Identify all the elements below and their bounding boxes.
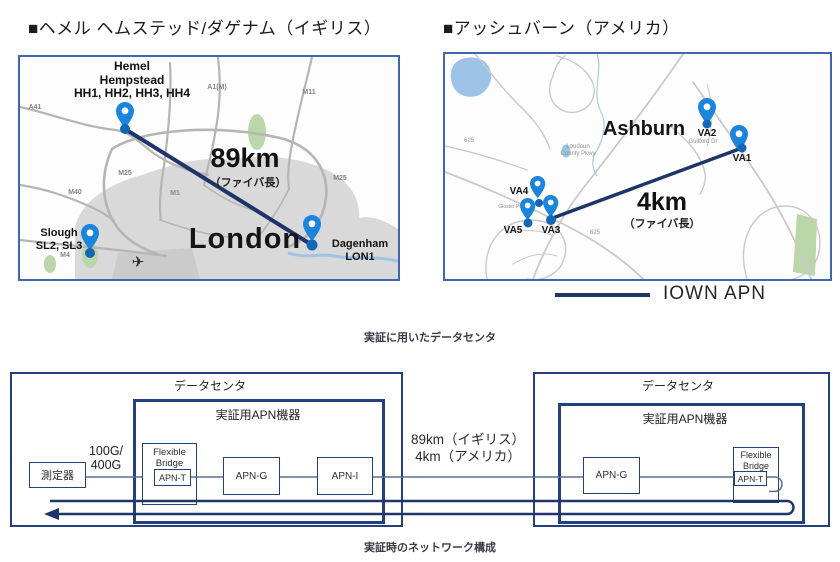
network-caption: 実証時のネットワーク構成 [280,539,580,555]
road-label-m40: M40 [62,189,88,196]
road-label-m25: M25 [112,170,138,177]
left-apn-equipment-label: 実証用APN機器 [183,406,333,423]
apn-i-box: APN-I [317,457,373,495]
right-datacenter-label: データセンタ [608,377,748,394]
iown-apn-legend-label: IOWN APN [663,283,766,305]
us-map: Ashburn VA2 VA1 VA4 VA5 VA3 4km （ファイバ長） … [443,52,832,281]
road-label-625: 625 [585,230,605,237]
left-apn-t-box: APN-T [154,469,191,486]
road-label-625: 625 [459,138,479,145]
left-datacenter-label: データセンタ [140,377,280,394]
lake-area [451,57,492,96]
va3-dot [546,215,556,225]
maps-caption: 実証に用いたデータセンタ [280,329,580,345]
road-label-m1: M1 [162,190,188,197]
road-label-a1m: A1(M) [202,84,232,91]
rate-label: 100G/ 400G [80,444,132,472]
uk-section-title: ■ヘメル ヘムステッド/ダゲナム（イギリス） [28,14,381,39]
fiber-distance-label: 89km（イギリス） 4km（アメリカ） [398,432,538,465]
uk-map: Hemel Hempstead HH1, HH2, HH3, HH4 89km … [18,55,400,281]
road-label-a41: A41 [22,104,48,111]
us-map-canvas [445,54,830,279]
va5-label: VA5 [499,225,527,236]
uk-fiber-note: （ファイバ長） [188,174,308,190]
right-apn-g-box: APN-G [583,457,640,494]
airport-plane-icon: ✈ [126,253,150,271]
va4-label: VA4 [505,186,533,197]
slough-site-label: Slough SL2, SL3 [24,227,94,253]
va2-label: VA2 [692,128,722,139]
va3-label: VA3 [537,225,565,236]
right-flexible-bridge-label: Flexible Bridge [734,448,778,471]
hemel-site-label: Hemel Hempstead HH1, HH2, HH3, HH4 [57,60,207,101]
road-label-m11: M11 [296,89,322,96]
dagenham-site-label: Dagenham LON1 [320,238,400,264]
iown-apn-legend-line [555,293,650,297]
us-section-title: ■アッシュバーン（アメリカ） [443,14,680,39]
figure-root: ■ヘメル ヘムステッド/ダゲナム（イギリス） ■アッシュバーン（アメリカ） [0,0,840,562]
road-label-m25: M25 [327,175,353,182]
us-distance-label: 4km [622,188,702,217]
road-label-m4: M4 [52,252,78,259]
road-label-guilford: Guilford Dr [688,139,718,146]
right-apn-t-box: APN-T [734,471,767,486]
va1-dot [738,144,747,153]
right-apn-equipment-label: 実証用APN機器 [610,410,760,427]
va4-dot [535,199,543,207]
road-label-loudoun: Loudoun County Pkwy [560,144,596,158]
left-flexible-bridge-label: Flexible Bridge [143,444,196,469]
us-fiber-note: （ファイバ長） [612,215,712,231]
left-apn-g-box: APN-G [223,457,280,495]
hemel-dot [120,124,130,134]
va1-label: VA1 [727,153,757,164]
measurement-device-box: 測定器 [29,462,86,488]
us-roads [445,54,820,279]
london-label: London [170,223,320,256]
uk-distance-label: 89km [190,143,300,174]
pin-va3-icon [543,195,558,217]
road-label-gloster: Gloster Pv [497,204,523,211]
ashburn-label: Ashburn [589,118,699,141]
